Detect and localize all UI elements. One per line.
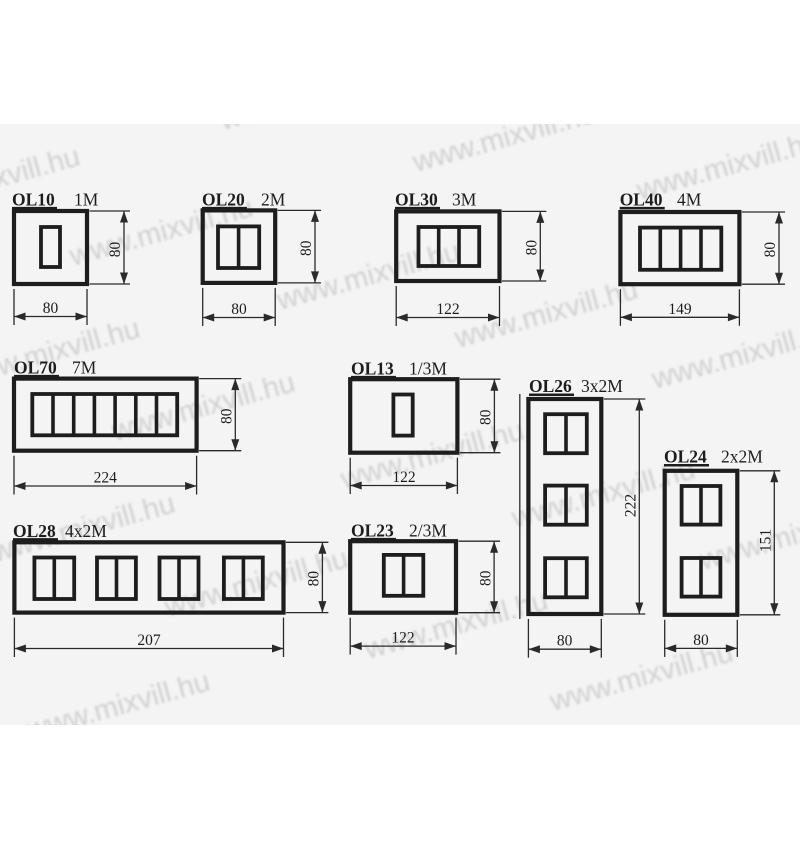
svg-text:OL23: OL23 xyxy=(351,521,394,541)
svg-text:1M: 1M xyxy=(74,190,99,210)
svg-text:OL13: OL13 xyxy=(351,359,394,379)
svg-text:OL40: OL40 xyxy=(620,190,663,210)
svg-text:OL24: OL24 xyxy=(664,447,707,467)
svg-text:4M: 4M xyxy=(677,190,702,210)
svg-text:80: 80 xyxy=(762,242,779,258)
svg-text:OL28: OL28 xyxy=(13,521,56,541)
svg-text:151: 151 xyxy=(758,529,775,552)
svg-text:80: 80 xyxy=(298,240,315,256)
svg-text:2M: 2M xyxy=(261,190,286,210)
svg-text:122: 122 xyxy=(391,630,414,647)
svg-text:80: 80 xyxy=(478,409,495,425)
svg-text:80: 80 xyxy=(693,632,709,649)
svg-text:1/3M: 1/3M xyxy=(409,359,447,379)
svg-text:80: 80 xyxy=(43,300,59,317)
svg-text:122: 122 xyxy=(392,469,415,486)
svg-text:80: 80 xyxy=(306,571,323,587)
svg-text:80: 80 xyxy=(557,633,573,650)
svg-text:80: 80 xyxy=(477,570,494,586)
svg-text:2x2M: 2x2M xyxy=(721,447,763,467)
svg-text:OL20: OL20 xyxy=(202,190,245,210)
svg-text:OL26: OL26 xyxy=(529,376,572,396)
svg-text:3x2M: 3x2M xyxy=(581,376,623,396)
svg-text:224: 224 xyxy=(94,470,118,487)
svg-text:149: 149 xyxy=(668,301,692,318)
svg-text:7M: 7M xyxy=(72,358,97,378)
svg-text:OL10: OL10 xyxy=(12,190,55,210)
svg-text:4x2M: 4x2M xyxy=(65,521,107,541)
svg-text:207: 207 xyxy=(137,632,161,649)
svg-text:OL30: OL30 xyxy=(395,190,438,210)
svg-text:3M: 3M xyxy=(452,190,477,210)
svg-text:80: 80 xyxy=(219,408,236,424)
svg-text:2/3M: 2/3M xyxy=(409,521,447,541)
svg-text:222: 222 xyxy=(623,494,640,517)
svg-text:80: 80 xyxy=(524,240,541,256)
svg-text:80: 80 xyxy=(107,242,124,258)
svg-text:OL70: OL70 xyxy=(14,358,57,378)
svg-text:80: 80 xyxy=(231,301,247,318)
svg-text:122: 122 xyxy=(436,301,459,318)
